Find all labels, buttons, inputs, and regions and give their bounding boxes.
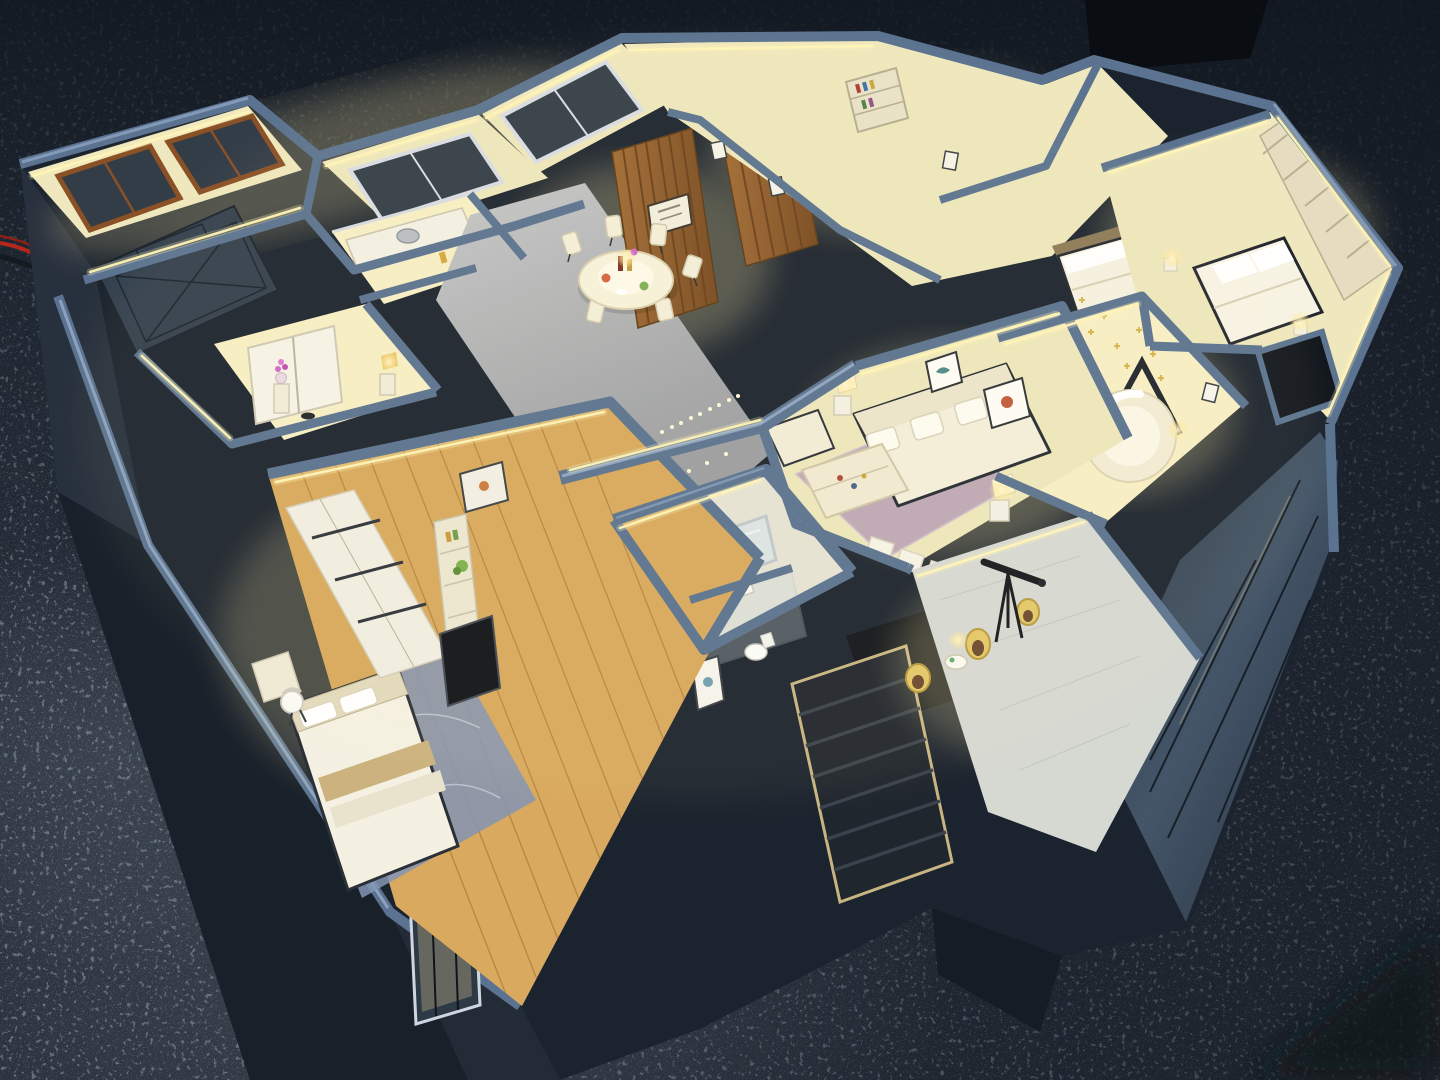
photo-architectural-model	[0, 0, 1440, 1080]
model-photo-canvas	[0, 0, 1440, 1080]
model-haze	[80, 40, 1320, 800]
